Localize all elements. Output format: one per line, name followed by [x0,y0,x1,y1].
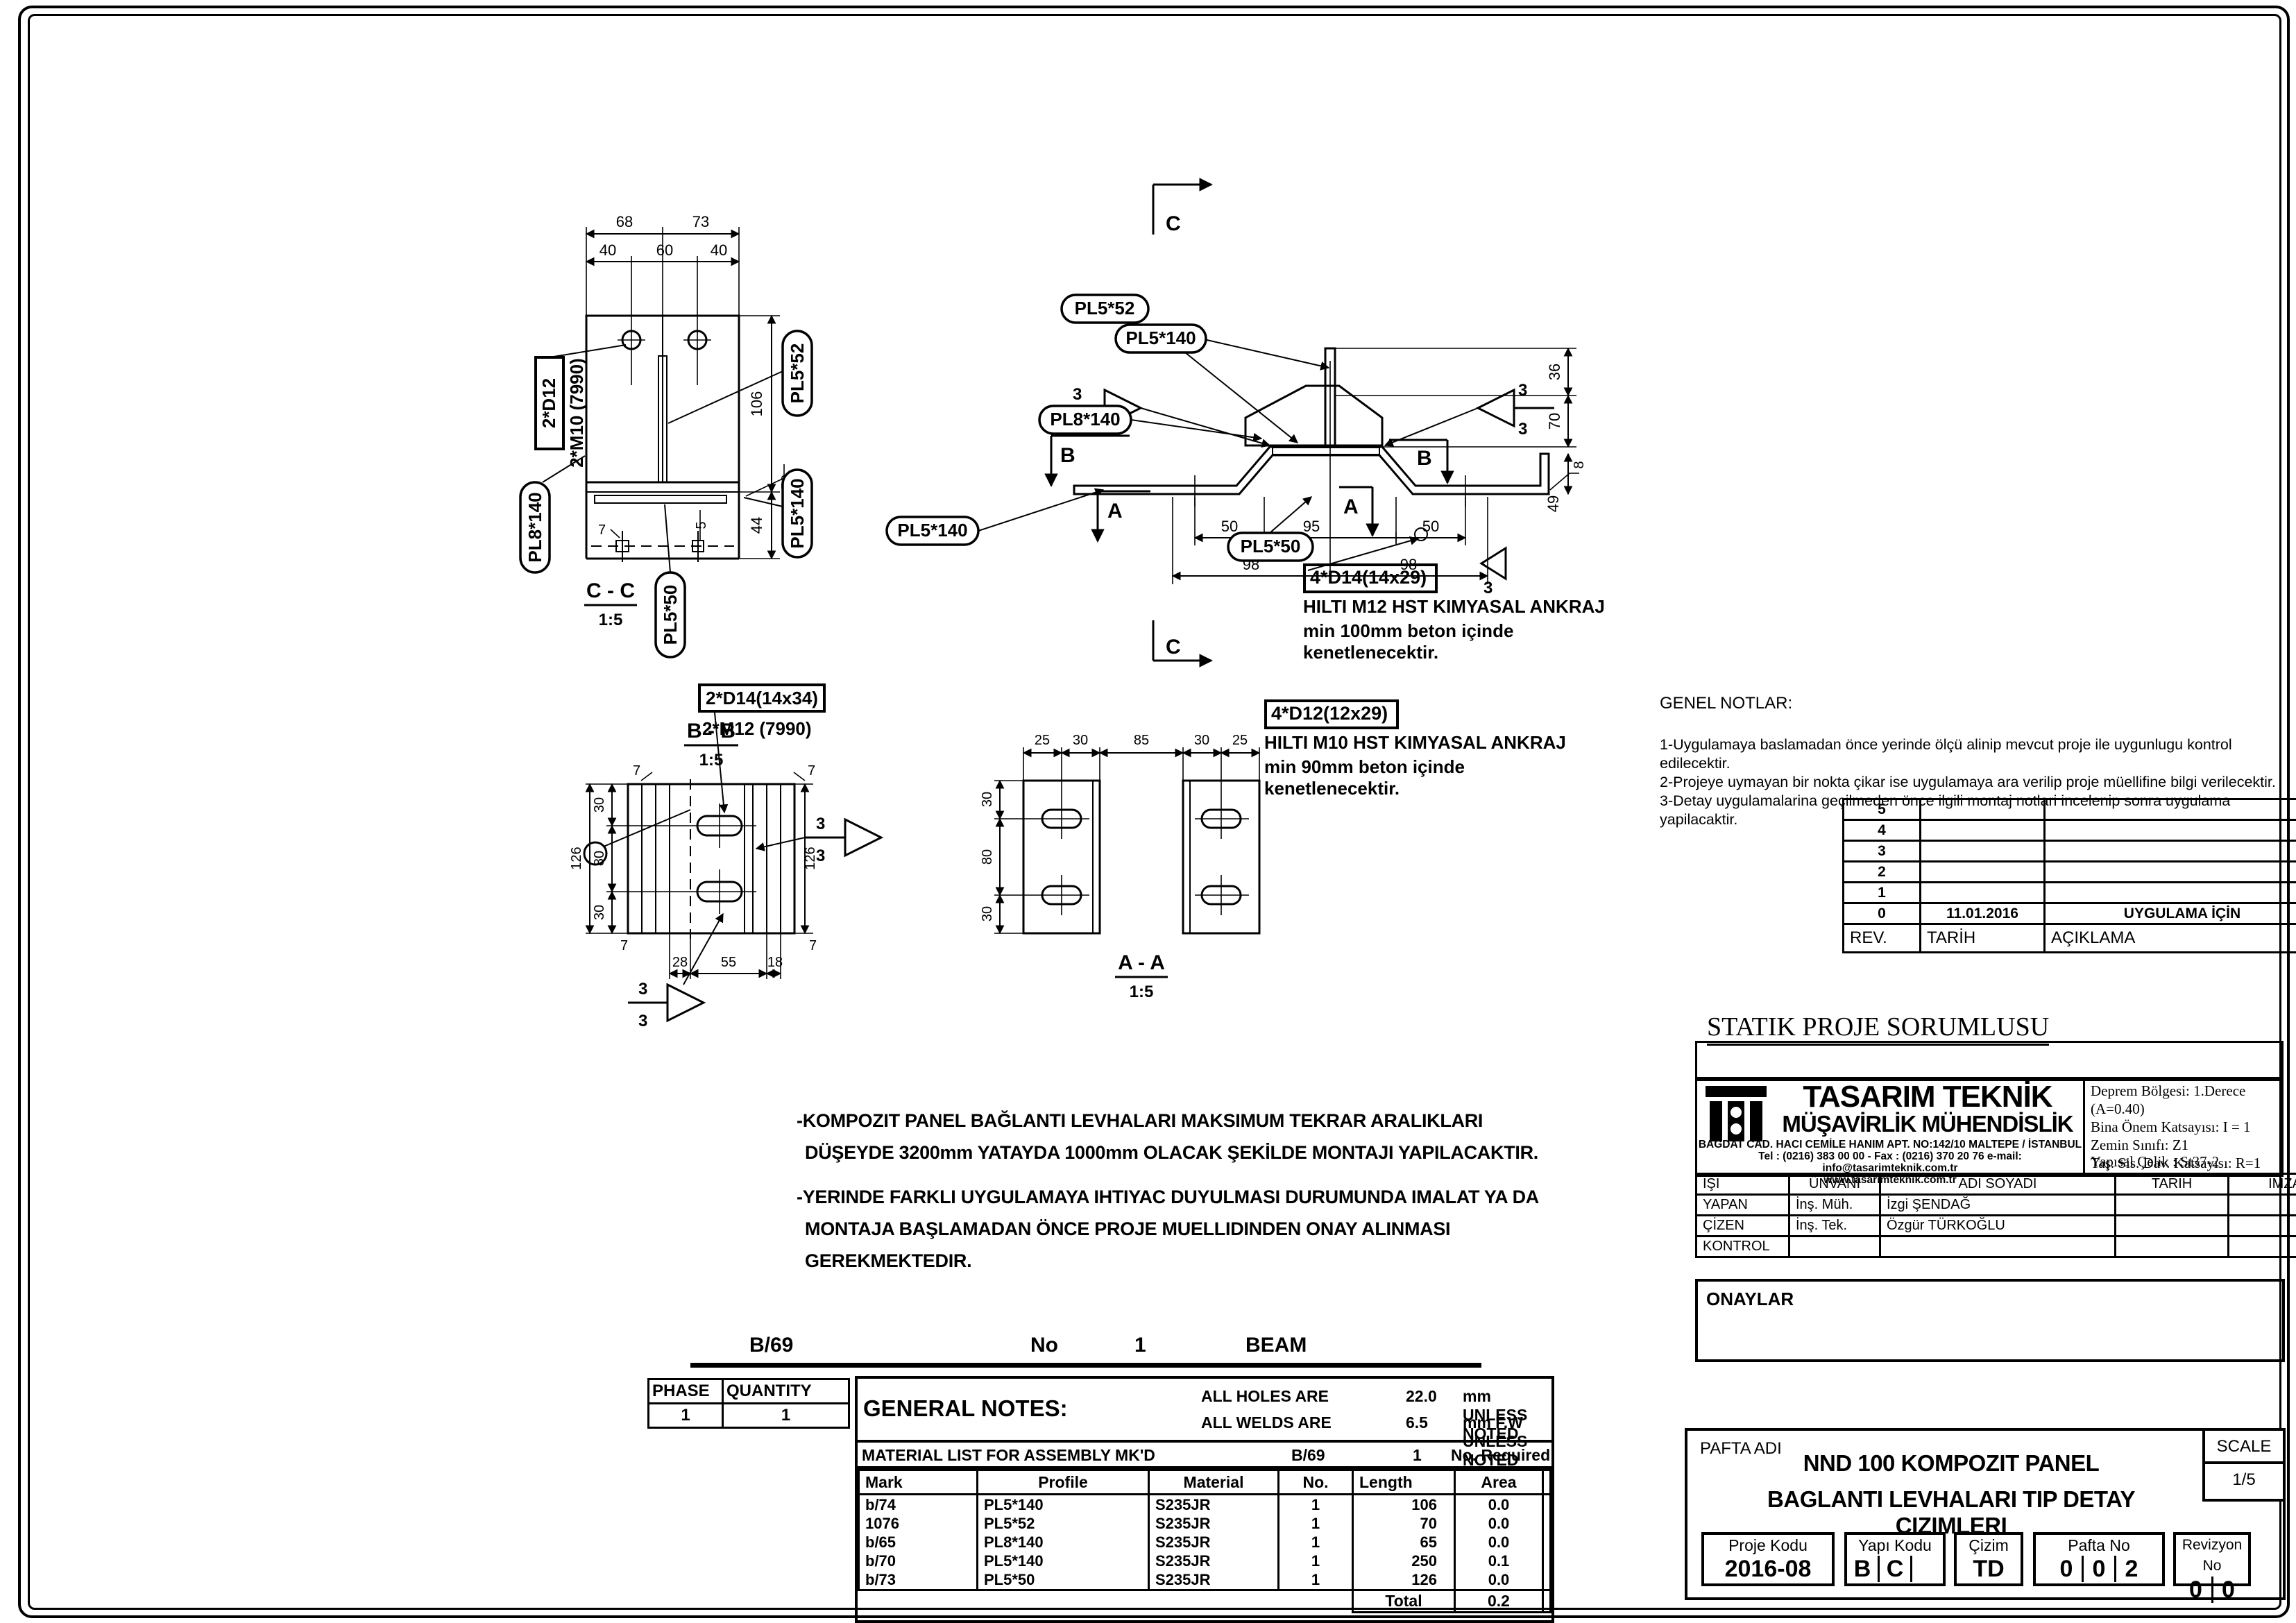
yapi-kodu-cells: BC [1847,1556,1943,1582]
sign-name: İzgi ŞENDAĞ [1880,1195,2116,1216]
sign-title: İnş. Müh. [1789,1195,1880,1216]
col-mark: Mark [859,1470,978,1495]
cc-dim-40b: 40 [711,241,727,259]
pafta-no-label: Pafta No [2036,1535,2162,1556]
table-row: b/70 PL5*140 S235JR 1 250 0.1 1.4 [859,1552,1551,1570]
rev-num: 3 [1844,841,1921,862]
total-spacer [859,1590,1353,1613]
holes-value: 22.0 [1406,1387,1437,1406]
pafta-no-c1: 0 [2051,1556,2082,1582]
cell-length: 70 [1353,1514,1455,1533]
total-label: Total [1353,1590,1455,1613]
rev-num: 0 [1844,903,1921,924]
table-row: Mark Profile Material No. Length Area We… [859,1470,1551,1495]
yapi-kodu-label: Yapı Kodu [1847,1535,1943,1556]
aa-view-title: A - A [1118,951,1165,974]
cell-weight: 0.6 [1543,1495,1551,1515]
statik-empty-box [1695,1041,2284,1081]
table-row: 2 [1844,862,2296,883]
el-label-pl550: PL5*50 [1241,536,1301,556]
onaylar-box: ONAYLAR [1695,1279,2285,1362]
assembly-mark: B/69 [749,1334,793,1357]
holes-label: ALL HOLES ARE [1201,1387,1329,1406]
quantity-header: QUANTITY [723,1379,849,1404]
el-label-pl552: PL5*52 [1075,298,1135,318]
sign-header-adi: ADI SOYADI [1880,1174,2116,1195]
assembly-underline [690,1363,1481,1368]
el-label-pl5140-top: PL5*140 [1125,328,1196,348]
welds-label: ALL WELDS ARE [1201,1413,1332,1432]
cell-area: 0.1 [1455,1552,1543,1570]
rev-date: 11.01.2016 [1921,903,2045,924]
aa-dim-25b: 25 [1232,733,1248,748]
cell-mark: 1076 [859,1514,978,1533]
rev-desc: UYGULAMA İÇİN [2045,903,2296,924]
genel-notlar-title: GENEL NOTLAR: [1660,694,2284,713]
company-names: TASARIM TEKNİK MÜŞAVİRLİK MÜHENDİSLİK [1775,1082,2080,1136]
yapi-kodu-box: Yapı Kodu BC [1844,1532,1946,1586]
sign-role: KONTROL [1697,1237,1789,1257]
el-section-a-right: A [1343,495,1359,518]
company-block: TASARIM TEKNİK MÜŞAVİRLİK MÜHENDİSLİK BA… [1695,1077,2284,1177]
cell-area: 0.0 [1455,1495,1543,1515]
cc-view-scale: 1:5 [599,611,623,629]
bb-dim-55: 55 [721,955,736,970]
bb-weld-3a: 3 [816,815,825,833]
cell-profile: PL5*52 [978,1514,1149,1533]
bb-weld-3b: 3 [816,847,825,865]
sign-role: ÇİZEN [1697,1216,1789,1237]
anchor-note-m12-line1: HILTI M12 HST KIMYASAL ANKRAJ [1303,596,1636,618]
bb-welds: 3 3 3 3 [628,815,881,1030]
col-no: No. [1279,1470,1353,1495]
rev-num: 4 [1844,820,1921,841]
cell-no: 1 [1279,1552,1353,1570]
pafta-title-2: BAGLANTI LEVHALARI TIP DETAY CIZIMLERI [1729,1486,2173,1539]
el-dim-50b: 50 [1422,518,1439,535]
pafta-no-box: Pafta No 002 [2033,1532,2165,1586]
revizyon-no-box: Revizyon No 00 [2173,1532,2251,1586]
cc-dim-40a: 40 [599,241,616,259]
table-row: 0 11.01.2016 UYGULAMA İÇİN [1844,903,2296,924]
el-label-pl5140-left: PL5*140 [897,520,967,541]
anchor-note-m10: 4*D12(12x29) HILTI M10 HST KIMYASAL ANKR… [1264,699,1597,799]
el-section-b-left: B [1060,444,1075,467]
bb-geometry [584,779,794,939]
cell-no: 1 [1279,1514,1353,1533]
material-list-caption: MATERIAL LIST FOR ASSEMBLY MK'D [862,1446,1155,1465]
col-material: Material [1149,1470,1279,1495]
aa-dim-v80: 80 [980,849,995,865]
montaj-note-p2l2: MONTAJA BAŞLAMADAN ÖNCE PROJE MUELLIDIND… [797,1213,1601,1277]
sign-date [2116,1216,2229,1237]
aa-dim-v30b: 30 [980,906,995,921]
revizyon-no-cells: 00 [2176,1577,2248,1603]
cell-weight: 0.2 [1543,1570,1551,1590]
anchor-note-m12-box: 4*D14(14x29) [1303,563,1438,593]
onaylar-label: ONAYLAR [1706,1289,2282,1310]
sign-table: İŞİ ÜNVANI ADI SOYADI TARİH İMZA YAPAN İ… [1695,1173,2296,1258]
pafta-title-1: NND 100 KOMPOZIT PANEL [1729,1450,2173,1477]
rev-desc [2045,883,2296,903]
el-section-c-top: C [1166,212,1181,235]
aa-title: A - A 1:5 [1115,951,1168,1001]
table-row: 1 1 [649,1404,849,1428]
yapi-kodu-c1: B [1847,1556,1878,1582]
cell-length: 126 [1353,1570,1455,1590]
genel-notlar-item-2: 2-Projeye uymayan bir nokta çikar ise uy… [1660,773,2284,792]
cell-mark: b/74 [859,1495,978,1515]
phase-value: 1 [649,1404,723,1428]
welds-value: 6.5 [1406,1413,1428,1432]
rev-date [1921,883,2045,903]
cell-profile: PL5*140 [978,1552,1149,1570]
aa-geometry [1023,781,1259,933]
bb-dim-30b: 30 [592,905,607,920]
table-row: REV. TARİH AÇIKLAMA [1844,924,2296,953]
rev-desc [2045,862,2296,883]
col-length: Length [1353,1470,1455,1495]
bb-dim-126a: 126 [569,847,584,869]
table-row: Total 0.2 3.0 [859,1590,1551,1613]
table-row: b/65 PL8*140 S235JR 1 65 0.0 0.6 [859,1533,1551,1552]
pafta-no-cells: 002 [2036,1556,2162,1582]
sign-name [1880,1237,2116,1257]
cell-mark: b/70 [859,1552,978,1570]
bb-dim-7c: 7 [620,938,628,953]
bb-dim-80: 80 [592,851,607,866]
rev-num: 5 [1844,799,1921,820]
rev-desc [2045,841,2296,862]
bb-label-box: 2*D14(14x34) [706,688,818,708]
cell-length: 106 [1353,1495,1455,1515]
montaj-notes: -KOMPOZIT PANEL BAĞLANTI LEVHALARI MAKSI… [797,1105,1601,1277]
total-weight: 3.0 [1543,1590,1551,1613]
el-section-a-left: A [1107,500,1123,522]
el-weld-3a: 3 [1073,385,1082,404]
el-weld-3d: 3 [1518,420,1527,439]
cell-profile: PL5*140 [978,1495,1149,1515]
sign-signature [2229,1216,2296,1237]
cizim-value: TD [1957,1556,2021,1582]
bb-dim-7a: 7 [633,763,640,779]
bb-weld-3c: 3 [638,980,647,999]
cell-profile: PL5*50 [978,1570,1149,1590]
cc-label-pl550: PL5*50 [660,585,681,645]
cell-area: 0.0 [1455,1533,1543,1552]
anchor-note-m10-line2: min 90mm beton içinde kenetlenecektir. [1264,756,1597,799]
seismic-line-2: Bina Önem Katsayısı: I = 1 [2091,1118,2276,1136]
general-notes-title: GENERAL NOTES: [863,1395,1068,1422]
rev-num: 2 [1844,862,1921,883]
el-section-c-bottom: C [1166,636,1181,658]
rev-date [1921,841,2045,862]
assembly-no-label: No [1030,1334,1058,1357]
company-logo-icon [1704,1085,1768,1146]
pafta-no-c3: 2 [2114,1556,2147,1582]
montaj-note-p1l1: -KOMPOZIT PANEL BAĞLANTI LEVHALARI MAKSI… [797,1105,1601,1137]
anchor-note-m12-line2: min 100mm beton içinde kenetlenecektir. [1303,620,1636,663]
bb-dim-30a: 30 [592,797,607,813]
seismic-box: Deprem Bölgesi: 1.Derece (A=0.40) Bina Ö… [2085,1079,2281,1175]
revizyon-no-c2: 0 [2211,1577,2244,1603]
el-dim-36: 36 [1546,364,1563,380]
pafta-no-c2: 0 [2082,1556,2114,1582]
col-profile: Profile [978,1470,1149,1495]
col-area: Area [1455,1470,1543,1495]
rev-desc [2045,820,2296,841]
bb-weld-3d: 3 [638,1012,647,1030]
bb-dim-28: 28 [672,955,688,970]
cell-weight: 1.4 [1543,1552,1551,1570]
sign-date [2116,1195,2229,1216]
aa-dim-85: 85 [1134,733,1149,748]
cizim-box: Çizim TD [1954,1532,2023,1586]
bb-dim-7b: 7 [808,763,815,779]
cc-dim-60: 60 [656,241,673,259]
aa-view-scale: 1:5 [1130,983,1154,1001]
cell-area: 0.0 [1455,1514,1543,1533]
cell-no: 1 [1279,1533,1353,1552]
cc-dim-68: 68 [616,213,633,230]
sign-title [1789,1237,1880,1257]
sign-header-tarih: TARİH [2116,1174,2229,1195]
cell-weight: 0.6 [1543,1533,1551,1552]
material-list-assembly: B/69 [1291,1446,1325,1465]
cc-label-pl552: PL5*52 [787,343,808,404]
sign-header-isi: İŞİ [1697,1174,1789,1195]
company-name-2: MÜŞAVİRLİK MÜHENDİSLİK [1775,1112,2080,1136]
cc-dimensions: 68 73 40 60 40 106 44 58 5 7 [586,213,794,559]
seismic-line-3: Zemin Sınıfı: Z1 [2091,1136,2276,1154]
montaj-note-p1l2: DÜŞEYDE 3200mm YATAYDA 1000mm OLACAK ŞEK… [797,1137,1601,1169]
sign-signature [2229,1195,2296,1216]
col-weight: Weight [1543,1470,1551,1495]
rev-num: 1 [1844,883,1921,903]
rev-header-aciklama: AÇIKLAMA [2045,924,2296,953]
el-weld-3c: 3 [1518,381,1527,400]
table-row: b/74 PL5*140 S235JR 1 106 0.0 0.6 [859,1495,1551,1515]
section-cc-drawing: 68 73 40 60 40 106 44 58 5 7 2*D12 2*M10… [507,184,867,663]
general-notes-block: GENERAL NOTES: ALL HOLES ARE 22.0 mm UNL… [855,1376,1554,1623]
el-section-b-right: B [1417,447,1432,470]
cell-mark: b/73 [859,1570,978,1590]
cc-title: C - C 1:5 [584,579,637,629]
cc-view-title: C - C [586,579,635,602]
material-list-req-label: No. Required [1451,1446,1550,1465]
cell-material: S235JR [1149,1570,1279,1590]
el-dim-50a: 50 [1221,518,1238,535]
cell-mark: b/65 [859,1533,978,1552]
revision-table: 5 4 3 2 1 0 11.01.2016 UYGULAMA İÇİN REV… [1842,798,2296,953]
sign-title: İnş. Tek. [1789,1216,1880,1237]
material-list-req-value: 1 [1413,1446,1422,1465]
company-tel: Tel : (0216) 383 00 00 - Fax : (0216) 37… [1697,1150,2083,1174]
cc-dim-106: 106 [748,391,765,417]
assembly-no-value: 1 [1134,1334,1146,1357]
cc-dim-5: 5 [694,521,709,529]
rev-header-tarih: TARİH [1921,924,2045,953]
seismic-line-5: Yapısal Çelik : St37-2 [2091,1153,2219,1171]
table-row: YAPAN İnş. Müh. İzgi ŞENDAĞ [1697,1195,2296,1216]
cc-label-pl5140: PL5*140 [787,478,808,548]
assembly-header: B/69 No 1 BEAM [690,1334,1481,1366]
cell-profile: PL8*140 [978,1533,1149,1552]
aa-dim-25a: 25 [1035,733,1050,748]
cell-material: S235JR [1149,1533,1279,1552]
cc-dim-44: 44 [748,517,765,534]
table-row: 1 [1844,883,2296,903]
total-area: 0.2 [1455,1590,1543,1613]
material-table: Mark Profile Material No. Length Area We… [858,1469,1551,1613]
rev-date [1921,799,2045,820]
table-row: b/73 PL5*50 S235JR 1 126 0.0 0.2 [859,1570,1551,1590]
aa-dim-30a: 30 [1073,733,1088,748]
assembly-type: BEAM [1245,1334,1307,1357]
cell-material: S235JR [1149,1552,1279,1570]
table-row: 3 [1844,841,2296,862]
el-dim-8: 8 [1572,461,1587,468]
table-row: KONTROL [1697,1237,2296,1257]
cell-area: 0.0 [1455,1570,1543,1590]
genel-notlar-item-1: 1-Uygulamaya baslamadan önce yerinde ölç… [1660,736,2284,773]
company-name-1: TASARIM TEKNİK [1775,1082,2080,1112]
cell-no: 1 [1279,1570,1353,1590]
sign-signature [2229,1237,2296,1257]
bb-label-sub: 2*M12 (7990) [702,718,812,739]
rev-date [1921,820,2045,841]
bb-dim-7d: 7 [809,938,817,953]
aa-dim-v30a: 30 [980,792,995,807]
anchor-note-m10-line1: HILTI M10 HST KIMYASAL ANKRAJ [1264,732,1597,754]
anchor-note-m12: 4*D14(14x29) HILTI M12 HST KIMYASAL ANKR… [1303,563,1636,663]
seismic-line-1: Deprem Bölgesi: 1.Derece (A=0.40) [2091,1082,2276,1118]
proje-kodu-label: Proje Kodu [1704,1535,1832,1556]
cc-label-pl8140: PL8*140 [525,492,545,562]
sign-name: Özgür TÜRKOĞLU [1880,1216,2116,1237]
cc-dim-7: 7 [598,522,606,538]
yapi-kodu-c3 [1910,1556,1943,1582]
rev-desc [2045,799,2296,820]
proje-kodu-box: Proje Kodu 2016-08 [1701,1532,1835,1586]
table-row: 5 [1844,799,2296,820]
cell-material: S235JR [1149,1495,1279,1515]
sign-date [2116,1237,2229,1257]
table-row: PHASE QUANTITY [649,1379,849,1404]
cell-length: 65 [1353,1533,1455,1552]
proje-kodu-value: 2016-08 [1704,1556,1832,1582]
table-row: 4 [1844,820,2296,841]
cc-dim-73: 73 [692,213,709,230]
revizyon-no-c1: 0 [2181,1577,2211,1603]
cizim-label: Çizim [1957,1535,2021,1556]
yapi-kodu-c2: C [1878,1556,1910,1582]
anchor-note-m10-box: 4*D12(12x29) [1264,699,1399,729]
el-dim-49: 49 [1545,495,1562,512]
table-row: 1076 PL5*52 S235JR 1 70 0.0 0.1 [859,1514,1551,1533]
sign-header-imza: İMZA [2229,1174,2296,1195]
table-row: İŞİ ÜNVANI ADI SOYADI TARİH İMZA [1697,1174,2296,1195]
el-dim-70: 70 [1546,413,1563,430]
cc-label-bolt-box: 2*D12 [538,378,559,428]
table-row: ÇİZEN İnş. Tek. Özgür TÜRKOĞLU [1697,1216,2296,1237]
quantity-value: 1 [723,1404,849,1428]
pafta-block: PAFTA ADI NND 100 KOMPOZIT PANEL BAGLANT… [1685,1428,2286,1600]
cc-label-bolt-sub: 2*M10 (7990) [566,358,587,468]
cell-length: 250 [1353,1552,1455,1570]
section-bb-drawing: B - B 1:5 2*D14(14x34) 2*M12 (7990) 7 7 … [569,677,958,1037]
el-label-pl8140: PL8*140 [1050,409,1120,430]
aa-dim-30b: 30 [1194,733,1209,748]
cc-geometry [586,316,739,562]
rev-header-rev: REV. [1844,924,1921,953]
cell-material: S235JR [1149,1514,1279,1533]
company-address: BAĞDAT CAD. HACI CEMİLE HANIM APT. NO:14… [1697,1139,2083,1150]
general-notes-header: GENERAL NOTES: ALL HOLES ARE 22.0 mm UNL… [858,1379,1551,1443]
material-list-caption-row: MATERIAL LIST FOR ASSEMBLY MK'D B/69 1 N… [858,1443,1551,1469]
revizyon-no-label: Revizyon No [2176,1535,2248,1577]
cell-weight: 0.1 [1543,1514,1551,1533]
company-left: TASARIM TEKNİK MÜŞAVİRLİK MÜHENDİSLİK BA… [1697,1079,2085,1175]
el-dim-95: 95 [1303,518,1320,535]
scale-value-box: 1/5 [2202,1461,2286,1502]
phase-table: PHASE QUANTITY 1 1 [647,1378,850,1429]
sign-header-unvani: ÜNVANI [1789,1174,1880,1195]
cell-no: 1 [1279,1495,1353,1515]
bb-dim-18: 18 [767,955,783,970]
phase-header: PHASE [649,1379,723,1404]
montaj-note-p2l1: -YERINDE FARKLI UYGULAMAYA IHTIYAC DUYUL… [797,1181,1601,1213]
el-labels: PL5*52 PL5*140 PL8*140 PL5*140 PL5*50 [887,295,1418,570]
rev-date [1921,862,2045,883]
sign-role: YAPAN [1697,1195,1789,1216]
